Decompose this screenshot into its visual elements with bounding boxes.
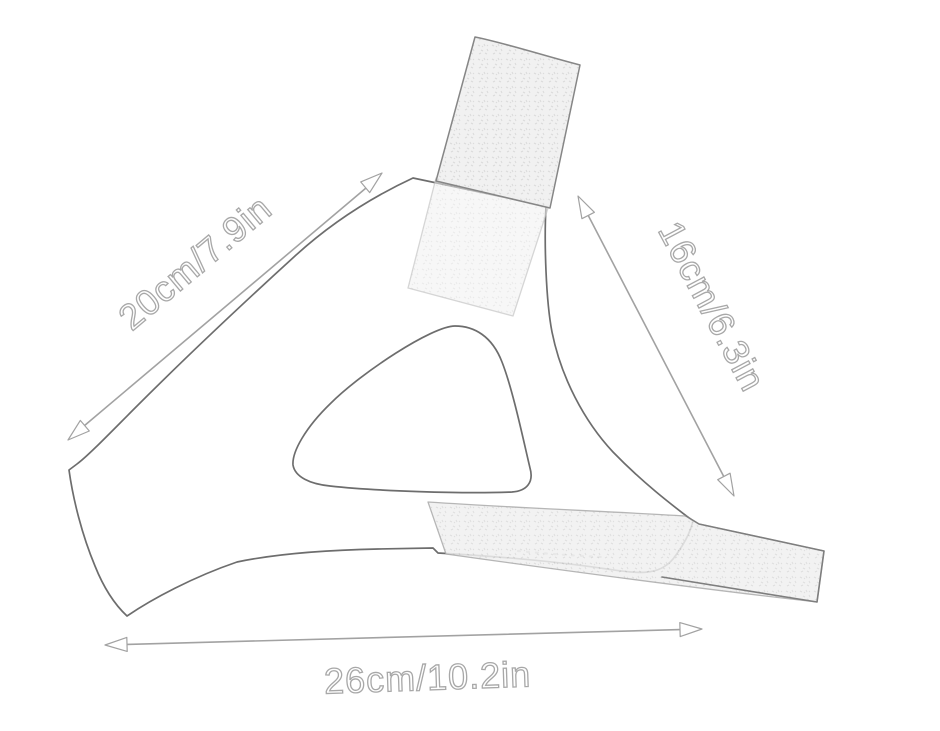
arrowhead-icon <box>680 623 702 637</box>
dimension-label-bottom: 26cm/10.2in <box>323 653 531 701</box>
diagram-canvas: 20cm/7.9in 16cm/6.3in 26cm/10.2in <box>0 0 940 731</box>
top-velcro-strap <box>436 37 580 208</box>
arrowhead-icon <box>578 196 594 219</box>
dimension-arrow-bottom <box>105 623 702 652</box>
right-velcro-strap <box>428 502 824 602</box>
product-dimension-diagram: 20cm/7.9in 16cm/6.3in 26cm/10.2in <box>0 0 940 731</box>
arrowhead-icon <box>105 637 127 651</box>
arrowhead-icon <box>718 473 734 496</box>
